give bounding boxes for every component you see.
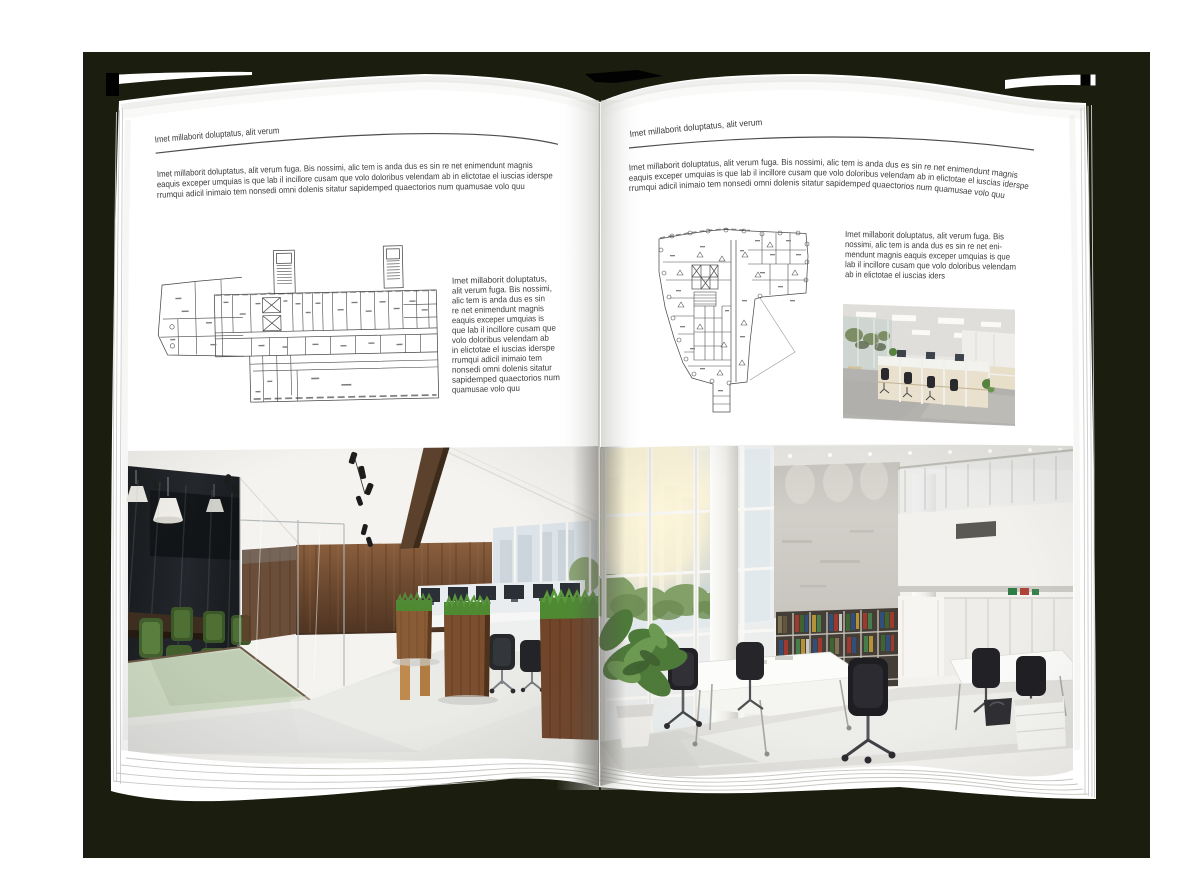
svg-text:quamusae volo quu: quamusae volo quu <box>452 383 520 395</box>
svg-text:ab in elictotae el iuscias ide: ab in elictotae el iuscias iders <box>845 269 945 280</box>
